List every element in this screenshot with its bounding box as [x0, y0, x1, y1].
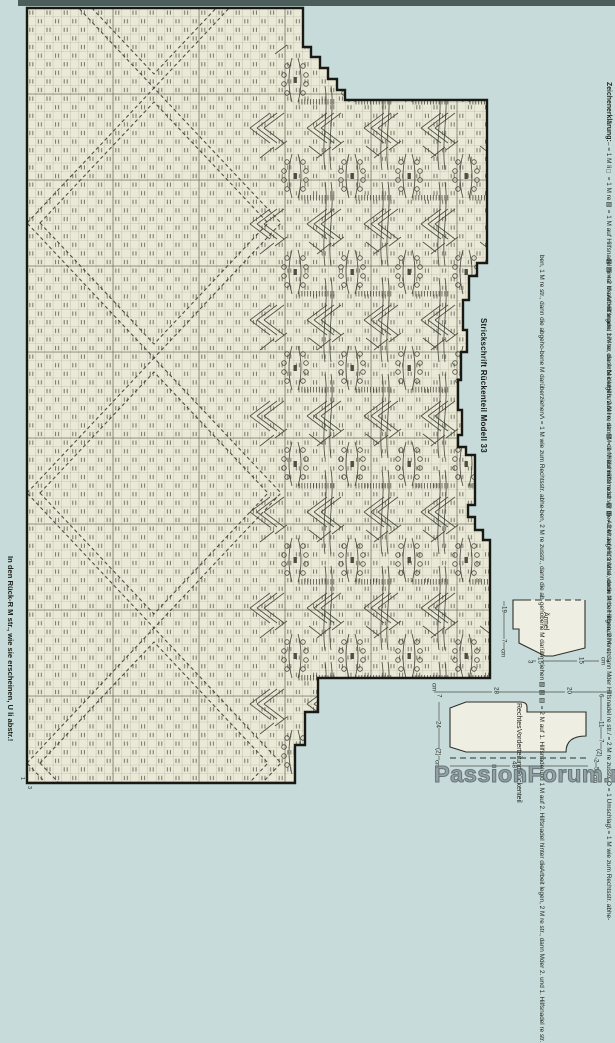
legend-line: Arbeit legen, 2 M re str., dann M [538, 868, 545, 959]
body-measurement: (2) [595, 749, 602, 757]
sleeve-measurement: 3 [526, 660, 533, 663]
legend-line: der 2. und 1. Hilfsnadel re str. [538, 959, 545, 1042]
body-measurement: 7 [597, 739, 604, 742]
legend-line: Λ = 1 M wie zum Rechtsstr. abhe- [538, 415, 545, 510]
sleeve-measurement: 7 [500, 639, 507, 642]
legend-line: □ = 1 M re [605, 168, 612, 200]
sleeve-measurement: 15 [536, 657, 543, 664]
chart-title: Strickschrift Rückenteil Modell 33 [479, 318, 488, 454]
body-measurement: cm [430, 683, 437, 691]
legend-line: ter die Arbeit legen, 2 M re, dann [605, 344, 612, 437]
body-measurement: 6 [597, 694, 604, 697]
body-measurement: 24 [434, 721, 441, 728]
sleeve-measurement: 19 [500, 606, 507, 613]
body-measurement: 7 [435, 694, 442, 697]
sleeve-measurement: 15 [577, 657, 584, 664]
legend-line: Zeichenerklärung: [605, 82, 612, 142]
sleeve-measurement: cm [499, 649, 506, 657]
legend-line: ▧▧ = 2 M auf Hilfsnadel vor [605, 501, 612, 586]
legend-line: der Hilfsnadel re str. [605, 676, 612, 733]
legend-line: ben, 2 M re zusstr., dann die ab- [538, 510, 545, 602]
legend-line: ben, 1 M re str., dann die abgeho- [538, 255, 545, 351]
legend-column-2: ▨▨ = 2 M auf Hilfsnadel hin-ter die Arbe… [605, 257, 612, 547]
row-instruction-footnote: In den Rück-R M str., wie sie erscheinen… [6, 556, 15, 796]
sleeve-schematic-label: Ärmel [542, 612, 549, 630]
body-measurement: 20 [565, 687, 572, 694]
sleeve-measurement: cm [599, 657, 606, 665]
legend-line: M der Hilfsnadel re str. [605, 437, 612, 501]
legend-line: ▨▨▥ = 2 M auf 1. Hilfsnadel [538, 680, 545, 770]
legend-line: ▨▨ = 2 M auf Hilfsnadel hin- [605, 257, 612, 344]
chart-corner-mark: 1 [19, 777, 25, 780]
legend-line: – = 1 M li [605, 142, 612, 168]
chart-corner-mark: 3 [26, 786, 32, 789]
watermark: PassionForum.ru [434, 761, 615, 788]
legend-column-1: Zeichenerklärung:– = 1 M li□ = 1 M re▨ =… [605, 82, 612, 262]
legend-column-3: ben, 1 M re str., dann die abgeho-bene M… [538, 255, 545, 545]
body-measurement: 11 [597, 721, 604, 727]
text-overlay: Zeichenerklärung:– = 1 M li□ = 1 M re▨ =… [0, 0, 615, 800]
body-measurement: (2) [434, 748, 441, 756]
body-measurement: 28 [492, 687, 499, 694]
body-schematic-label-line: Rechtes [514, 703, 522, 729]
body-schematic-label-line: Vorderteil [514, 729, 522, 759]
legend-line: bene M darüberziehen [538, 351, 545, 415]
scanned-magazine-page: Zeichenerklärung:– = 1 M li□ = 1 M re▨ =… [0, 0, 615, 800]
legend-line: \ = 1 M wie zum Rechtsstr. abhe- [605, 827, 612, 920]
